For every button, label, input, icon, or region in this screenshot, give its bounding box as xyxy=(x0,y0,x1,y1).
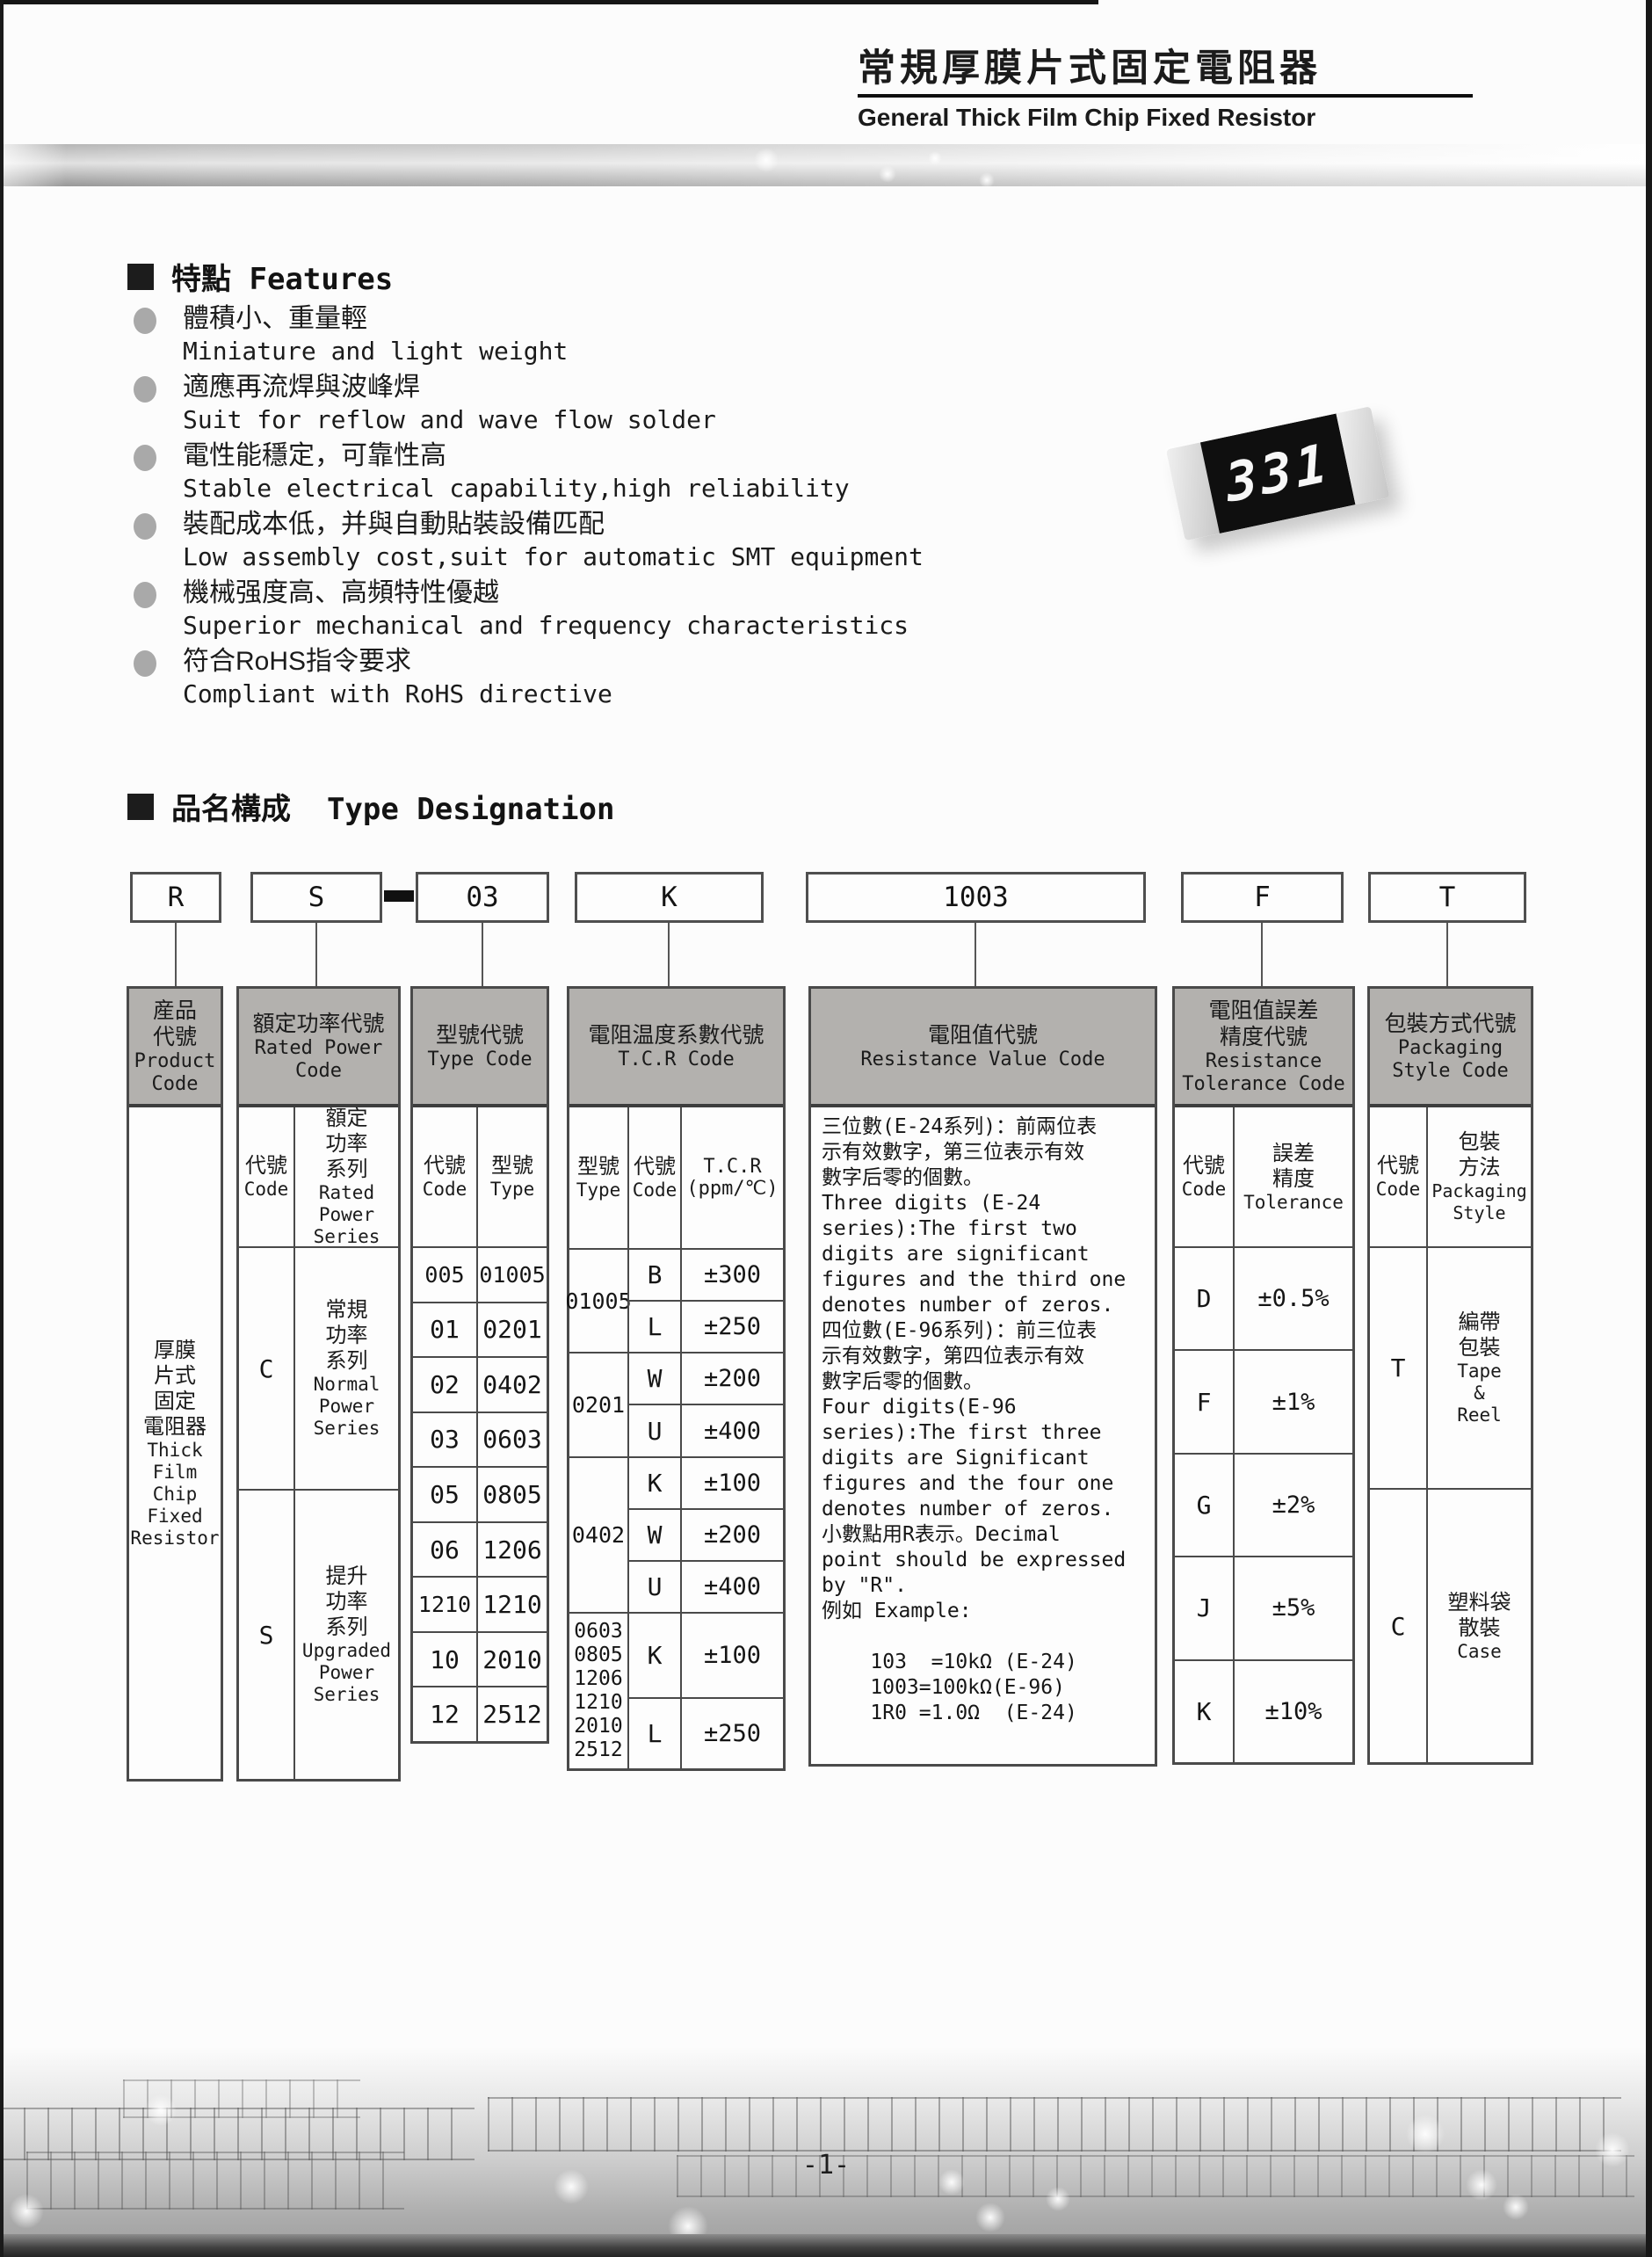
sparkle-dot xyxy=(145,2094,177,2126)
subheader-cell: 代號 Code xyxy=(627,1107,680,1248)
type-code-column: 型號代號 Type Code 代號 Code 型號 Type 005 01005… xyxy=(410,986,549,1744)
title-divider xyxy=(858,94,1473,98)
table-cell: ±250 xyxy=(680,1300,783,1352)
subheader-cell: 代號 Code xyxy=(1175,1107,1233,1246)
dash-icon xyxy=(384,890,414,902)
feature-text-cn: 機械强度高、高頻特性優越 xyxy=(183,577,993,610)
tolerance-column: 電阻值誤差 精度代號 Resistance Tolerance Code 代號 … xyxy=(1172,986,1355,1765)
tcr-column: 電阻温度系數代號 T.C.R Code 型號 Type 代號 Code T.C.… xyxy=(567,986,786,1771)
sparkle-dot xyxy=(879,165,896,183)
subheader-cn: 代號 xyxy=(424,1153,466,1179)
table-cell: F xyxy=(1175,1349,1233,1452)
table-cell: K xyxy=(627,1456,680,1508)
column-header-cn: 電阻值代號 xyxy=(928,1022,1038,1049)
subheader-cell: 代號 Code xyxy=(239,1107,293,1246)
table-cell: 01 xyxy=(413,1302,476,1357)
bullet-circle-icon xyxy=(134,650,156,677)
column-header-en: Resistance Value Code xyxy=(860,1049,1105,1071)
page-right-edge xyxy=(1646,0,1652,2257)
code-box-tcr: K xyxy=(575,872,764,923)
product-body-cell: 厚膜 片式 固定 電阻器 Thick Film Chip Fixed Resis… xyxy=(129,1107,221,1779)
feature-text-cn: 體積小、重量輕 xyxy=(183,302,993,336)
table-cell: ±300 xyxy=(680,1248,783,1300)
resistance-value-column-header: 電阻值代號 Resistance Value Code xyxy=(811,989,1155,1107)
feature-item: 適應再流焊與波峰焊 Suit for reflow and wave flow … xyxy=(132,371,993,435)
table-cell: L xyxy=(627,1697,680,1768)
table-cell: ±0.5% xyxy=(1233,1246,1352,1349)
table-cell: L xyxy=(627,1300,680,1352)
tcr-type-cell: 01005 xyxy=(569,1248,627,1352)
code-box-resistance-value: 1003 xyxy=(806,872,1146,923)
product-body-en: Thick Film Chip Fixed Resistor xyxy=(130,1440,219,1549)
table-cell: 提升 功率 系列 Upgraded Power Series xyxy=(293,1489,398,1779)
connector-line xyxy=(315,923,317,986)
table-cell: C xyxy=(239,1246,293,1489)
table-cell: 1210 xyxy=(476,1576,547,1631)
column-header-en: T.C.R Code xyxy=(618,1049,734,1071)
datasheet-page: 常規厚膜片式固定電阻器 General Thick Film Chip Fixe… xyxy=(0,0,1652,2257)
tcr-type-cell: 0201 xyxy=(569,1352,627,1456)
table-cell: G xyxy=(1175,1453,1233,1556)
table-cell: 2512 xyxy=(476,1686,547,1741)
table-cell: 編帶 包裝 Tape & Reel xyxy=(1426,1246,1531,1488)
table-cell: ±400 xyxy=(680,1404,783,1456)
page-bottom-edge xyxy=(0,2234,1652,2257)
table-cell: 0402 xyxy=(476,1356,547,1412)
table-cell: ±400 xyxy=(680,1560,783,1612)
page-header: 常規厚膜片式固定電阻器 General Thick Film Chip Fixe… xyxy=(858,47,1473,132)
rated-power-column: 額定功率代號 Rated Power Code 代號 Code 額定 功率 系列… xyxy=(236,986,401,1782)
feature-text-cn: 符合RoHS指令要求 xyxy=(183,645,993,679)
table-cell: 1206 xyxy=(476,1521,547,1577)
connector-line xyxy=(668,923,670,986)
table-cell: ±200 xyxy=(680,1352,783,1404)
type-designation-heading-label: 品名構成 Type Designation xyxy=(171,785,614,828)
table-cell: C xyxy=(1370,1488,1426,1762)
connector-line xyxy=(1261,923,1263,986)
connector-line xyxy=(975,923,976,986)
column-header-cn: 額定功率代號 xyxy=(252,1011,384,1037)
series-en: Upgraded Power Series xyxy=(302,1640,391,1706)
subheader-en: Rated Power Series xyxy=(314,1182,380,1248)
chip-black-body: 331 xyxy=(1200,414,1356,534)
footer: -1- xyxy=(0,2046,1652,2257)
table-cell: ±100 xyxy=(680,1612,783,1697)
column-header-cn: 電阻温度系數代號 xyxy=(588,1022,764,1049)
feature-text-en: Compliant with RoHS directive xyxy=(183,679,993,709)
sparkle-dot xyxy=(1046,2187,1070,2211)
product-column-header: 産品 代號 Product Code xyxy=(129,989,221,1107)
table-cell: 0603 xyxy=(476,1412,547,1467)
chip-body: 331 xyxy=(1166,406,1390,541)
table-cell: 2010 xyxy=(476,1631,547,1687)
table-cell: ±250 xyxy=(680,1697,783,1768)
table-cell: 10 xyxy=(413,1631,476,1687)
table-cell: 005 xyxy=(413,1246,476,1302)
table-cell: 03 xyxy=(413,1412,476,1467)
table-cell: 02 xyxy=(413,1356,476,1412)
feature-text-cn: 電性能穩定，可靠性高 xyxy=(183,439,993,473)
column-header-en: Product Code xyxy=(134,1050,216,1096)
page-title-cn: 常規厚膜片式固定電阻器 xyxy=(858,47,1473,90)
table-cell: D xyxy=(1175,1246,1233,1349)
code-box-product: R xyxy=(130,872,221,923)
table-cell: 塑料袋 散裝 Case xyxy=(1426,1488,1531,1762)
feature-text-en: Superior mechanical and frequency charac… xyxy=(183,610,993,641)
chip-resistor-photo: 331 xyxy=(1162,406,1390,560)
feature-text-cn: 適應再流焊與波峰焊 xyxy=(183,371,993,404)
subheader-cell: T.C.R (ppm/℃) xyxy=(680,1107,783,1248)
subheader-en: Type xyxy=(490,1179,535,1201)
series-en: Normal Power Series xyxy=(314,1374,380,1440)
feature-text-en: Miniature and light weight xyxy=(183,336,993,366)
product-body-cn: 厚膜 片式 固定 電阻器 xyxy=(143,1338,206,1440)
table-cell: 01005 xyxy=(476,1246,547,1302)
tcr-column-header: 電阻温度系數代號 T.C.R Code xyxy=(569,989,783,1107)
code-box-tolerance: F xyxy=(1181,872,1344,923)
subheader-cell: 型號 Type xyxy=(569,1107,627,1248)
table-cell: J xyxy=(1175,1556,1233,1658)
section-square-icon xyxy=(127,264,154,290)
table-cell: S xyxy=(239,1489,293,1779)
table-cell: ±2% xyxy=(1233,1453,1352,1556)
header-gradient-band xyxy=(0,144,1652,186)
sparkle-dot xyxy=(9,2194,44,2229)
table-cell: B xyxy=(627,1248,680,1300)
column-header-cn: 包裝方式代號 xyxy=(1384,1011,1516,1037)
page-title-en: General Thick Film Chip Fixed Resistor xyxy=(858,104,1473,132)
type-code-column-header: 型號代號 Type Code xyxy=(413,989,547,1107)
connector-line xyxy=(482,923,483,986)
code-box-rated-power: S xyxy=(250,872,382,923)
resistance-value-description: 三位數(E-24系列)：前兩位表 示有效數字，第三位表示有效 數字后零的個數。 … xyxy=(811,1107,1155,1764)
column-header-en: Resistance Tolerance Code xyxy=(1182,1050,1344,1096)
tcr-type-cell: 0402 xyxy=(569,1456,627,1612)
section-square-icon xyxy=(127,794,154,820)
bullet-circle-icon xyxy=(134,582,156,608)
feature-item: 機械强度高、高頻特性優越 Superior mechanical and fre… xyxy=(132,577,993,641)
column-header-cn: 電阻值誤差 精度代號 xyxy=(1208,998,1318,1050)
feature-item: 裝配成本低，并與自動貼裝設備匹配 Low assembly cost,suit … xyxy=(132,508,993,572)
sparkle-dot xyxy=(754,148,779,172)
connector-line xyxy=(175,923,177,986)
feature-text-en: Suit for reflow and wave flow solder xyxy=(183,404,993,435)
features-heading-label: 特點 Features xyxy=(171,255,393,298)
table-cell: 05 xyxy=(413,1466,476,1521)
table-cell: ±10% xyxy=(1233,1659,1352,1762)
bullet-circle-icon xyxy=(134,308,156,334)
column-header-en: Packaging Style Code xyxy=(1392,1037,1508,1083)
code-box-packaging: T xyxy=(1368,872,1526,923)
feature-item: 符合RoHS指令要求 Compliant with RoHS directive xyxy=(132,645,993,709)
table-cell: K xyxy=(1175,1659,1233,1762)
table-cell: ±1% xyxy=(1233,1349,1352,1452)
code-value: S xyxy=(259,1621,274,1650)
table-cell: U xyxy=(627,1404,680,1456)
sparkle-dot xyxy=(1406,2115,1445,2153)
table-cell: T xyxy=(1370,1246,1426,1488)
table-cell: W xyxy=(627,1508,680,1560)
table-cell: ±5% xyxy=(1233,1556,1352,1658)
feature-item: 體積小、重量輕 Miniature and light weight xyxy=(132,302,993,366)
feature-text-en: Stable electrical capability,high reliab… xyxy=(183,473,993,504)
chip-marking: 331 xyxy=(1222,432,1333,515)
footer-pattern xyxy=(488,2097,1621,2152)
subheader-en: Code xyxy=(244,1179,289,1201)
sparkle-dot xyxy=(979,172,995,188)
subheader-cell: 代號 Code xyxy=(413,1107,476,1246)
rated-power-column-header: 額定功率代號 Rated Power Code xyxy=(239,989,398,1107)
column-header-cn: 型號代號 xyxy=(436,1022,524,1049)
table-cell: 0201 xyxy=(476,1302,547,1357)
packaging-column: 包裝方式代號 Packaging Style Code 代號 Code 包裝 方… xyxy=(1367,986,1533,1765)
packaging-column-header: 包裝方式代號 Packaging Style Code xyxy=(1370,989,1531,1107)
table-cell: 1210 xyxy=(413,1576,476,1631)
code-box-type: 03 xyxy=(416,872,549,923)
sparkle-dot xyxy=(975,2203,1005,2232)
table-cell: ±100 xyxy=(680,1456,783,1508)
sparkle-dot xyxy=(928,151,942,165)
subheader-cn: 型號 xyxy=(491,1153,533,1179)
connector-line xyxy=(1446,923,1448,986)
features-heading: 特點 Features xyxy=(127,255,393,298)
table-cell: 12 xyxy=(413,1686,476,1741)
subheader-en: Code xyxy=(423,1179,467,1201)
table-cell: U xyxy=(627,1560,680,1612)
feature-item: 電性能穩定，可靠性高 Stable electrical capability,… xyxy=(132,439,993,504)
page-top-edge xyxy=(0,0,1098,4)
subheader-cell: 包裝 方法 Packaging Style xyxy=(1426,1107,1531,1246)
tolerance-column-header: 電阻值誤差 精度代號 Resistance Tolerance Code xyxy=(1175,989,1352,1107)
bullet-circle-icon xyxy=(134,445,156,471)
type-designation-heading: 品名構成 Type Designation xyxy=(127,785,614,828)
sparkle-dot xyxy=(1503,2194,1529,2220)
table-cell: 06 xyxy=(413,1521,476,1577)
subheader-cn: 額定 功率 系列 xyxy=(326,1106,368,1182)
product-column: 産品 代號 Product Code 厚膜 片式 固定 電阻器 Thick Fi… xyxy=(127,986,223,1782)
subheader-cell: 型號 Type xyxy=(476,1107,547,1246)
resistance-value-column: 電阻值代號 Resistance Value Code 三位數(E-24系列)：… xyxy=(808,986,1157,1767)
subheader-cell: 代號 Code xyxy=(1370,1107,1426,1246)
table-cell: K xyxy=(627,1612,680,1697)
page-number: -1- xyxy=(0,2150,1652,2181)
tcr-type-cell: 0603 0805 1206 1210 2010 2512 xyxy=(569,1612,627,1768)
code-value: C xyxy=(259,1354,274,1383)
subheader-cn: 代號 xyxy=(245,1153,287,1179)
feature-text-en: Low assembly cost,suit for automatic SMT… xyxy=(183,541,993,572)
table-cell: 0805 xyxy=(476,1466,547,1521)
features-list: 體積小、重量輕 Miniature and light weight 適應再流焊… xyxy=(132,302,993,714)
feature-text-cn: 裝配成本低，并與自動貼裝設備匹配 xyxy=(183,508,993,541)
column-header-cn: 産品 代號 xyxy=(153,998,197,1050)
subheader-cell: 額定 功率 系列 Rated Power Series xyxy=(293,1107,398,1246)
bullet-circle-icon xyxy=(134,376,156,403)
column-header-en: Type Code xyxy=(427,1049,532,1071)
page-left-edge xyxy=(0,0,4,2257)
column-header-en: Rated Power Code xyxy=(255,1037,383,1083)
series-cn: 常規 功率 系列 xyxy=(326,1297,368,1374)
bullet-circle-icon xyxy=(134,513,156,540)
subheader-cell: 誤差 精度 Tolerance xyxy=(1233,1107,1352,1246)
table-cell: ±200 xyxy=(680,1508,783,1560)
series-cn: 提升 功率 系列 xyxy=(326,1564,368,1640)
table-cell: W xyxy=(627,1352,680,1404)
table-cell: 常規 功率 系列 Normal Power Series xyxy=(293,1246,398,1489)
